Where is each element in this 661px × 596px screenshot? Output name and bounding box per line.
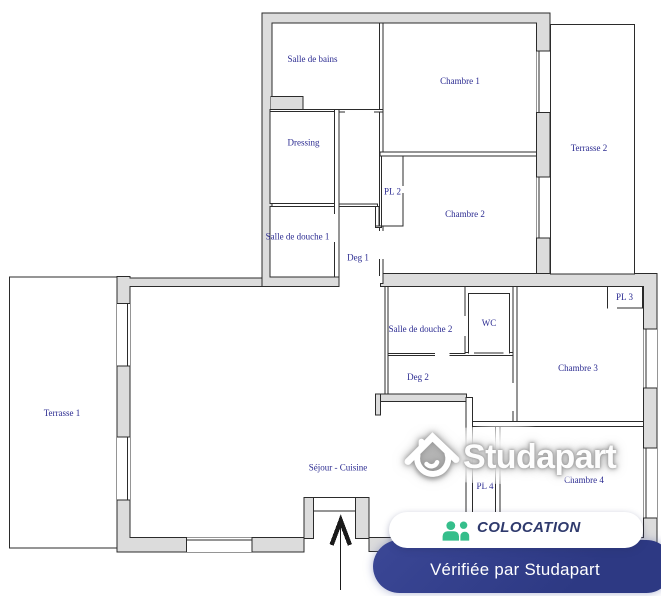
svg-text:Salle de douche 1: Salle de douche 1 xyxy=(266,232,330,242)
svg-text:Terrasse 2: Terrasse 2 xyxy=(571,143,608,153)
svg-text:Deg 2: Deg 2 xyxy=(407,372,429,382)
svg-text:Salle de bains: Salle de bains xyxy=(288,54,338,64)
svg-text:Dressing: Dressing xyxy=(288,138,320,148)
svg-text:Chambre 3: Chambre 3 xyxy=(558,363,598,373)
svg-text:Terrasse 1: Terrasse 1 xyxy=(44,408,81,418)
svg-text:PL 3: PL 3 xyxy=(616,292,633,302)
svg-text:Deg 1: Deg 1 xyxy=(347,253,369,263)
svg-text:WC: WC xyxy=(482,318,497,328)
svg-text:Séjour - Cuisine: Séjour - Cuisine xyxy=(309,463,368,473)
svg-text:Salle de douche 2: Salle de douche 2 xyxy=(389,324,453,334)
svg-text:PL 2: PL 2 xyxy=(384,187,401,197)
svg-text:Chambre 2: Chambre 2 xyxy=(445,209,485,219)
svg-text:Chambre 1: Chambre 1 xyxy=(440,76,480,86)
